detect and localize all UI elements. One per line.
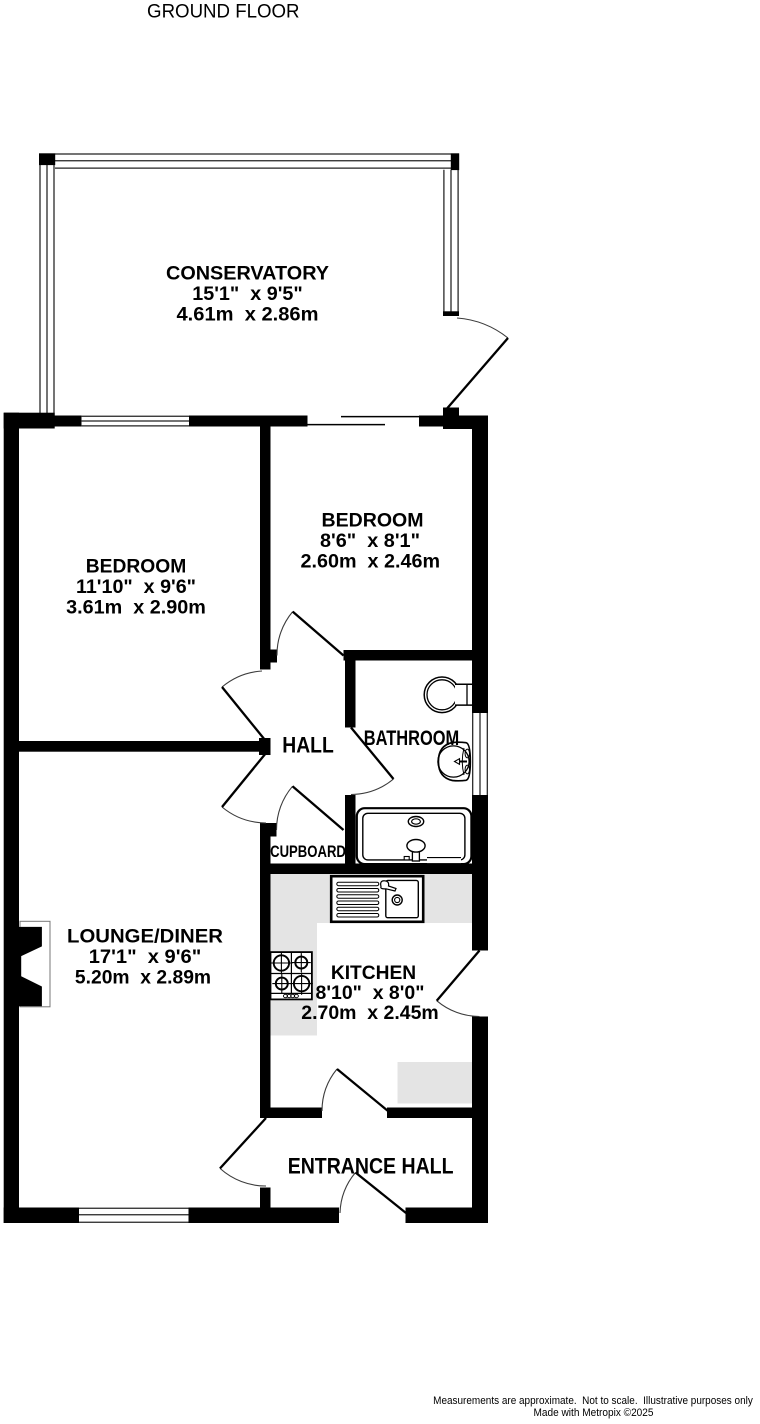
svg-text:LOUNGE/DINER: LOUNGE/DINER [67, 925, 223, 947]
svg-text:2.70m x 2.45m: 2.70m x 2.45m [301, 1002, 438, 1024]
svg-text:8'10" x 8'0": 8'10" x 8'0" [316, 982, 425, 1004]
svg-text:BATHROOM: BATHROOM [364, 726, 460, 750]
svg-text:3.61m x 2.90m: 3.61m x 2.90m [66, 596, 206, 618]
svg-text:CONSERVATORY: CONSERVATORY [166, 262, 329, 284]
svg-text:KITCHEN: KITCHEN [331, 962, 416, 984]
svg-text:GROUND FLOOR: GROUND FLOOR [147, 1, 300, 23]
svg-text:BEDROOM: BEDROOM [86, 555, 187, 577]
svg-text:HALL: HALL [282, 732, 334, 757]
svg-text:15'1" x 9'5": 15'1" x 9'5" [192, 283, 303, 305]
svg-text:Made with Metropix ©2025: Made with Metropix ©2025 [534, 1407, 654, 1419]
svg-text:2.60m x 2.46m: 2.60m x 2.46m [301, 550, 441, 572]
svg-text:17'1" x 9'6": 17'1" x 9'6" [89, 946, 202, 968]
svg-text:CUPBOARD: CUPBOARD [270, 843, 346, 861]
svg-text:5.20m x 2.89m: 5.20m x 2.89m [75, 966, 211, 988]
svg-text:8'6" x 8'1": 8'6" x 8'1" [320, 530, 420, 552]
svg-text:BEDROOM: BEDROOM [322, 509, 424, 531]
svg-text:Measurements are approximate.: Measurements are approximate. Not to sca… [433, 1395, 753, 1407]
svg-text:ENTRANCE HALL: ENTRANCE HALL [288, 1154, 454, 1179]
svg-text:11'10" x 9'6": 11'10" x 9'6" [76, 576, 196, 598]
svg-text:4.61m x 2.86m: 4.61m x 2.86m [177, 303, 319, 325]
